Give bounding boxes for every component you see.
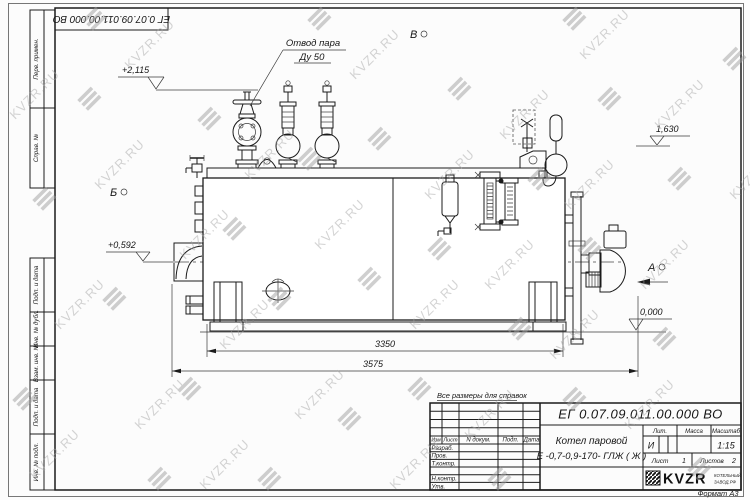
watermark-logo-icon (367, 127, 391, 151)
col-list: Лист (442, 438, 458, 444)
col-date: Дата (523, 438, 540, 444)
side-label-podp-data-2: Подп. и дата (33, 387, 40, 426)
logo-hatch-icon (646, 471, 660, 485)
mass-label: Масса (685, 429, 703, 435)
row-tkontr: Т.контр. (432, 461, 456, 467)
side-label-sprav-no: Справ. № (33, 134, 40, 162)
watermark-logo-icon (177, 377, 201, 401)
callout-line1: Отвод пара (286, 38, 340, 49)
watermark-logo-icon (307, 7, 331, 31)
svg-text:0,000: 0,000 (640, 307, 663, 317)
product-name: Котел паровой (556, 436, 628, 447)
watermark-logo-icon (82, 7, 106, 31)
top-stamp-number: ЕГ 0.07.09.011.00.000 ВО (53, 13, 171, 24)
view-v-marker: В (410, 29, 427, 41)
product-model: Е -0,7-0,9-170- ГЛЖ ( Ж ) (537, 451, 647, 462)
sheets-total-value: 2 (731, 458, 736, 465)
col-sign: Подп. (503, 438, 519, 444)
watermark-logo-icon (197, 107, 221, 131)
svg-text:+0,592: +0,592 (108, 240, 136, 250)
side-label-vzam-inv: Взам. инв. № (33, 344, 40, 383)
watermark-text: KVZR.RU (132, 376, 188, 432)
drawing-sheet: Перв. примен. Справ. № Подп. и дата Инв.… (0, 0, 750, 500)
watermark-logo-icon (257, 467, 281, 491)
row-nkontr: Н.контр. (432, 477, 457, 483)
logo-sub2: ЗАВОД.РФ (714, 480, 737, 485)
elevation-left: +0,592 (106, 240, 176, 262)
scale-value: 1:15 (717, 441, 736, 451)
watermark-text: KVZR.RU (577, 6, 633, 62)
watermark-logo-icon (77, 87, 101, 111)
sheet-label: Лист (651, 458, 669, 465)
callout-line2: Ду 50 (299, 52, 325, 63)
lit-value: И (648, 441, 655, 451)
safety-valve-2 (315, 81, 339, 168)
lit-label: Лит. (652, 429, 667, 435)
watermark-logo-icon (447, 77, 471, 101)
watermark-logo-icon (102, 287, 126, 311)
svg-text:Б: Б (110, 187, 117, 199)
watermark-text: KVZR.RU (637, 236, 693, 292)
logo-sub1: КОТЕЛЬНЫЙ (714, 473, 742, 478)
watermark-text: KVZR.RU (52, 276, 108, 332)
view-b-marker: Б (110, 187, 127, 199)
elevation-zero: 0,000 (629, 307, 672, 330)
title-block: Все размеры для справок Изм Лист N докум… (430, 391, 742, 498)
watermark-logo-icon (652, 327, 676, 351)
engineering-drawing-svg: Перв. примен. Справ. № Подп. и дата Инв.… (0, 0, 750, 500)
watermark-text: KVZR.RU (622, 376, 678, 432)
watermark-text: KVZR.RU (292, 366, 348, 422)
top-left-drain-valve (186, 155, 204, 178)
side-label-inv-dubl: Инв. № дубл. (33, 310, 40, 348)
watermark-logo-icon (667, 167, 691, 191)
watermark-logo-icon (407, 377, 431, 401)
safety-valve-1 (276, 81, 300, 168)
watermark-text: KVZR.RU (242, 126, 298, 182)
watermark-logo-icon (297, 147, 321, 171)
watermark-logo-icon (597, 87, 621, 111)
row-utv: Утв. (431, 484, 446, 490)
watermark-text: KVZR.RU (347, 26, 403, 82)
watermark-logo-icon (337, 407, 361, 431)
watermark-logo-icon (147, 467, 171, 491)
sheet-value: 1 (682, 458, 686, 465)
elevation-top: +2,115 (118, 65, 258, 90)
steam-outlet-callout: Отвод пара Ду 50 (250, 38, 346, 106)
watermark-text: KVZR.RU (92, 136, 148, 192)
side-label-podp-data-1: Подп. и дата (33, 265, 40, 304)
dim-overall-length: 3575 (363, 359, 384, 369)
watermark-logo-icon (562, 7, 586, 31)
svg-text:В: В (410, 29, 417, 41)
watermark-text: KVZR.RU (652, 76, 708, 132)
format-label: Формат А3 (697, 489, 739, 498)
dim-inner-length: 3350 (375, 339, 395, 349)
watermark-text: KVZR.RU (497, 86, 553, 142)
side-label-perv-primen: Перв. примен. (33, 38, 40, 79)
watermark-text: KVZR.RU (197, 436, 253, 492)
top-stamp: ЕГ 0.07.09.011.00.000 ВО (53, 8, 171, 30)
watermark-text: KVZR.RU (727, 146, 750, 202)
watermark-logo-icon (487, 467, 511, 491)
watermark-logo-icon (722, 47, 746, 71)
watermark-logo-icon (32, 187, 56, 211)
scale-label: Масштаб (712, 429, 741, 435)
watermark-text: KVZR.RU (562, 156, 618, 212)
